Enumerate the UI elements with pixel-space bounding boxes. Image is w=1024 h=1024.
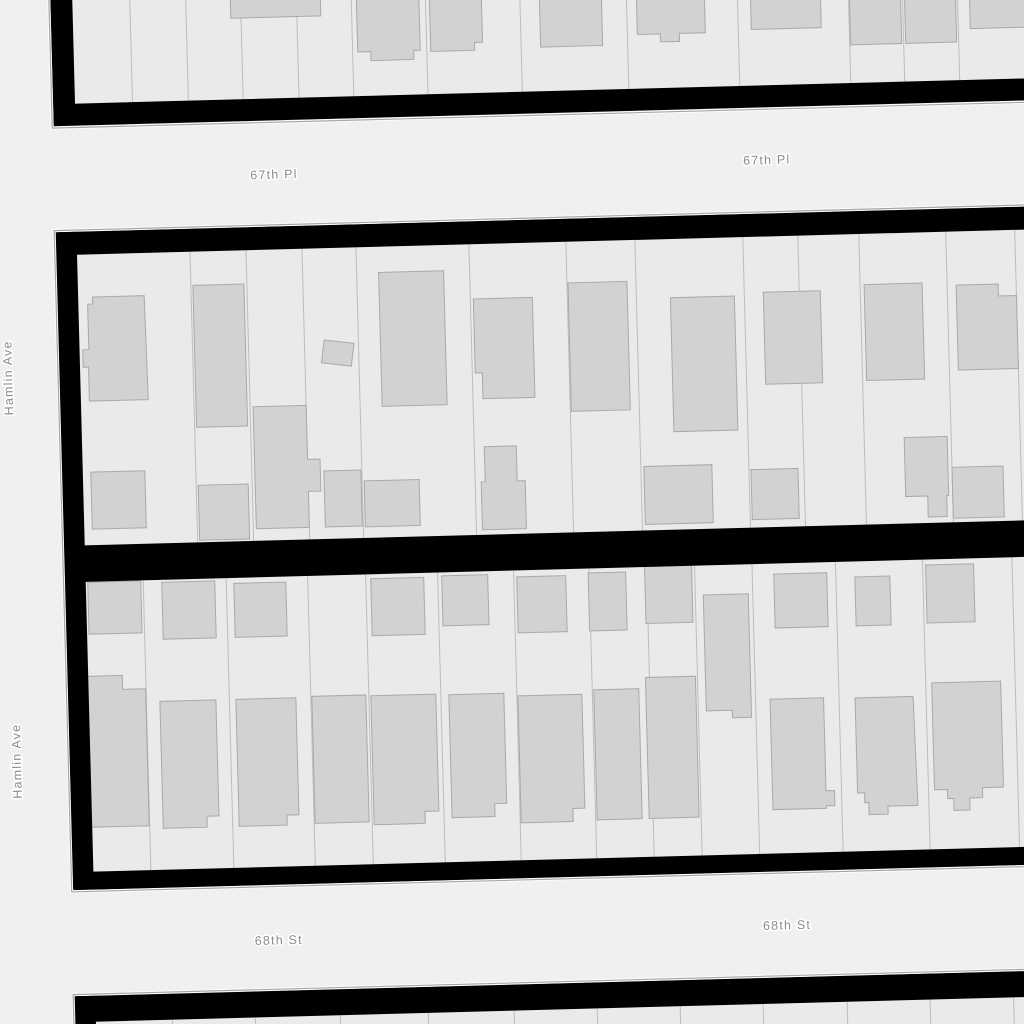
svg-text:67th Pl: 67th Pl	[250, 167, 298, 182]
svg-text:Hamlin Ave: Hamlin Ave	[0, 340, 16, 415]
svg-text:68th St: 68th St	[255, 933, 303, 948]
svg-text:68th St: 68th St	[763, 918, 811, 933]
svg-text:67th Pl: 67th Pl	[743, 152, 791, 167]
svg-text:Hamlin Ave: Hamlin Ave	[9, 724, 25, 799]
